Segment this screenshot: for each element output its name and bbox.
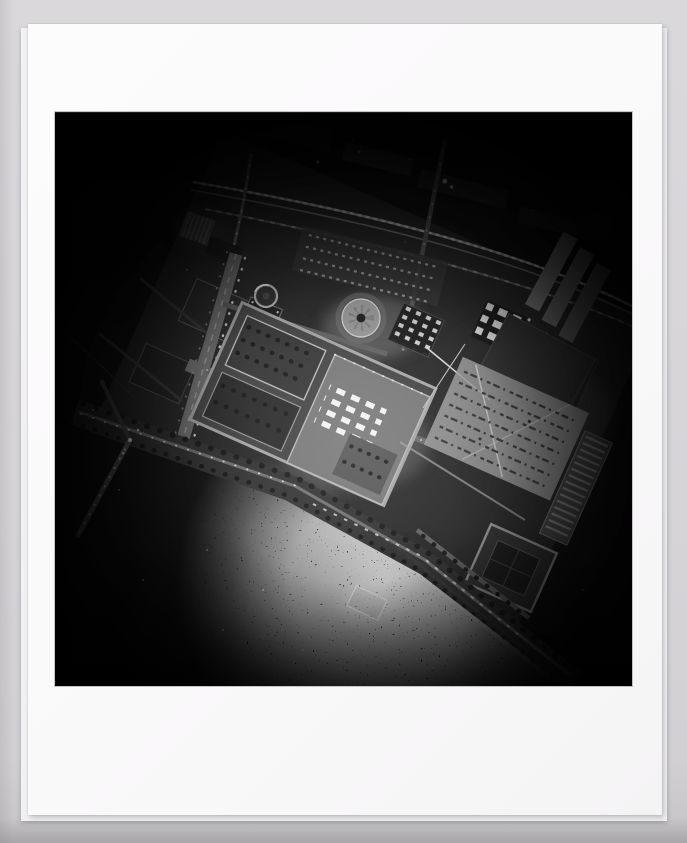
- print-top-edge-line: [55, 112, 632, 113]
- photograph: [55, 112, 632, 686]
- catalog-backdrop: [0, 0, 687, 843]
- aerial-night-photo-image: [55, 112, 632, 686]
- print-sheet: [28, 24, 662, 815]
- bottom-shade: [55, 112, 632, 686]
